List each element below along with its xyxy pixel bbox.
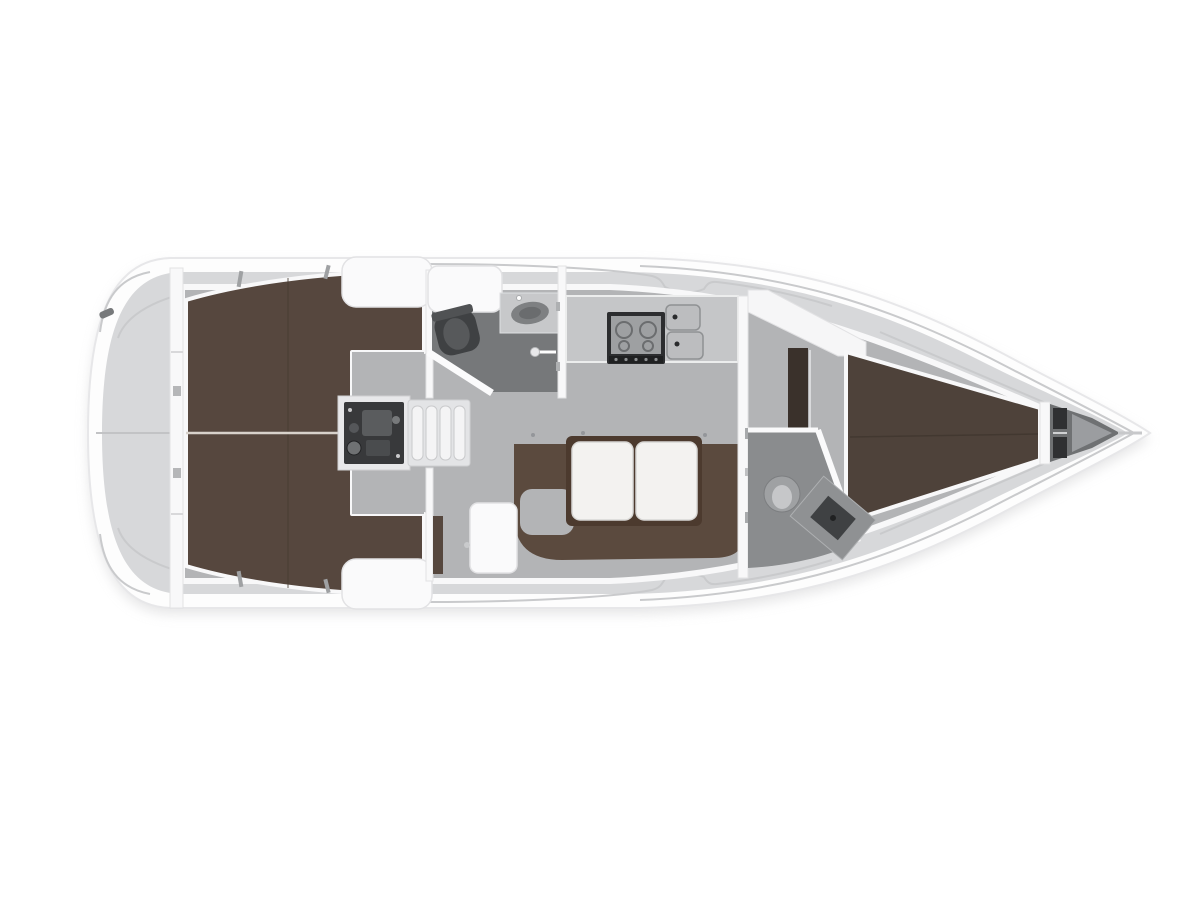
galley-stove [607, 312, 665, 364]
port-cabin-entry-trim [433, 516, 443, 574]
galley [566, 296, 738, 364]
forepeak-bulkhead [1040, 402, 1050, 464]
yacht-floor-plan: Sailing yacht interior layout plan — top… [0, 0, 1200, 900]
aft-cabin-floor-port [352, 468, 424, 514]
forward-head-toilet [764, 476, 800, 512]
galley-double-sink [666, 305, 703, 359]
yacht-layout-canvas: Sailing yacht interior layout plan — top… [0, 0, 1200, 900]
engine-compartment [338, 396, 410, 470]
salon-side-seat [470, 503, 517, 573]
companionway-steps [408, 400, 470, 466]
cockpit-locker-port [342, 559, 432, 609]
salon-table-leaf-right [636, 442, 697, 520]
cockpit-locker-starboard [342, 257, 432, 307]
aft-cabin-floor-starboard [352, 352, 424, 398]
aft-bulkhead-lower [426, 468, 433, 581]
salon-table-leaf-left [572, 442, 633, 520]
aft-head-sink [500, 293, 562, 333]
settee-inner-corner [520, 489, 574, 535]
transom-bulkhead [170, 268, 183, 608]
aft-head-wall [558, 266, 566, 398]
wardrobe-locker [788, 348, 808, 428]
